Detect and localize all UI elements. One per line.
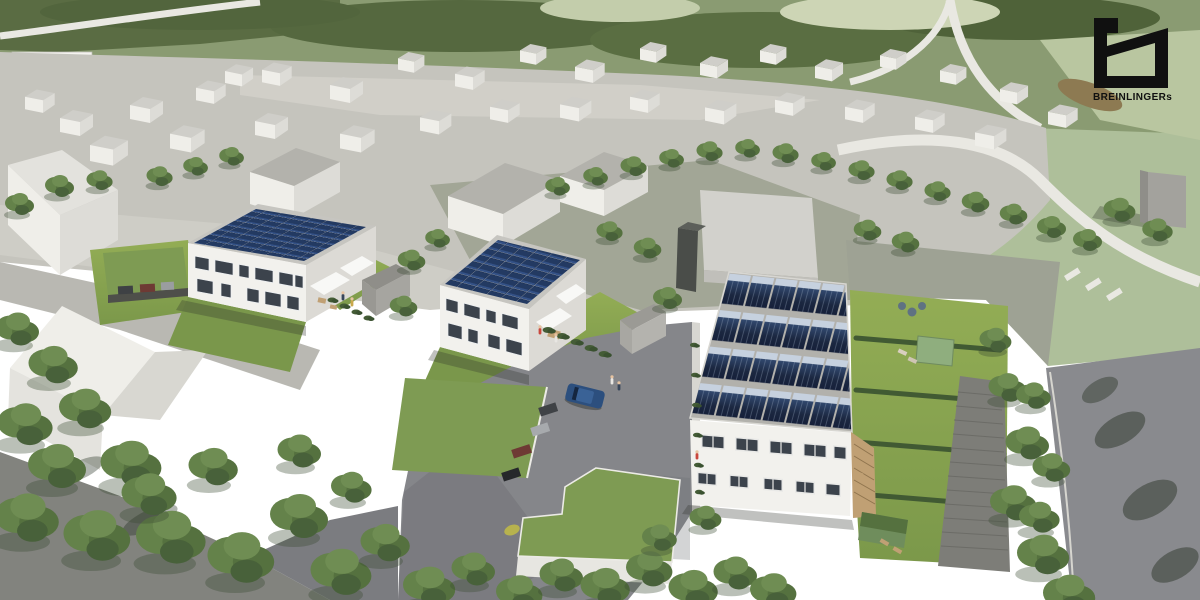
parked-car xyxy=(118,286,133,295)
carport-west xyxy=(103,247,188,303)
person xyxy=(695,450,698,459)
carport-green-roof xyxy=(392,378,547,478)
shrub-blue xyxy=(898,302,906,310)
tree xyxy=(1018,502,1060,539)
person xyxy=(554,333,557,342)
rowhouse-east xyxy=(682,272,876,530)
shrub-blue xyxy=(908,308,917,317)
parked-car xyxy=(161,282,174,291)
tree xyxy=(268,494,328,547)
hedge xyxy=(352,310,363,316)
retaining-wall-side xyxy=(1140,170,1148,224)
garden-pavilion xyxy=(916,336,954,366)
person xyxy=(617,381,620,390)
tree xyxy=(667,570,718,600)
person xyxy=(538,325,541,334)
rendering-canvas: BREINLINGERs xyxy=(0,0,1200,600)
hedge xyxy=(364,316,375,322)
shrub-blue xyxy=(918,302,926,310)
person xyxy=(350,297,353,306)
tree xyxy=(330,472,372,509)
rowhouse-wall-front xyxy=(690,420,852,516)
tree xyxy=(120,473,177,523)
tree xyxy=(1015,382,1051,414)
tree xyxy=(1015,535,1069,583)
person xyxy=(341,291,344,300)
brand-logo-text: BREINLINGERs xyxy=(1093,92,1172,103)
architectural-rendering: BREINLINGERs xyxy=(0,0,1200,600)
person xyxy=(610,375,613,384)
tree xyxy=(187,448,238,493)
tree xyxy=(205,532,274,593)
parked-car xyxy=(140,284,155,293)
tree xyxy=(276,435,321,475)
